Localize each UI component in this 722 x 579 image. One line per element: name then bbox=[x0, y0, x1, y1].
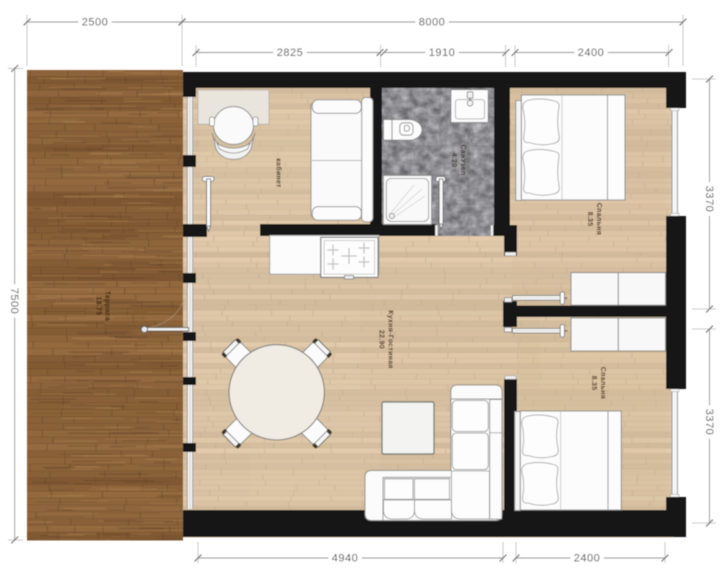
svg-text:Кухня-Гостиная: Кухня-Гостиная bbox=[386, 310, 393, 369]
svg-text:2825: 2825 bbox=[277, 47, 303, 59]
svg-text:2400: 2400 bbox=[578, 47, 604, 59]
svg-text:18.75: 18.75 bbox=[95, 296, 102, 315]
svg-text:кабинет: кабинет bbox=[275, 158, 283, 188]
svg-text:3370: 3370 bbox=[703, 186, 715, 212]
svg-text:22.90: 22.90 bbox=[378, 330, 385, 349]
svg-text:8000: 8000 bbox=[419, 17, 445, 29]
svg-text:4940: 4940 bbox=[332, 553, 358, 565]
svg-text:1910: 1910 bbox=[429, 47, 455, 59]
svg-text:8.35: 8.35 bbox=[590, 376, 597, 391]
svg-text:2500: 2500 bbox=[82, 17, 108, 29]
svg-text:Терраса: Терраса bbox=[103, 291, 110, 321]
svg-text:7500: 7500 bbox=[8, 288, 20, 314]
svg-text:8.35: 8.35 bbox=[586, 212, 593, 227]
svg-text:Спальня: Спальня bbox=[599, 367, 606, 399]
svg-text:СанУзел: СанУзел bbox=[459, 144, 466, 175]
svg-text:2400: 2400 bbox=[574, 553, 600, 565]
svg-text:Спальня: Спальня bbox=[595, 203, 602, 235]
svg-text:3370: 3370 bbox=[703, 409, 715, 435]
svg-text:4.20: 4.20 bbox=[450, 153, 457, 168]
